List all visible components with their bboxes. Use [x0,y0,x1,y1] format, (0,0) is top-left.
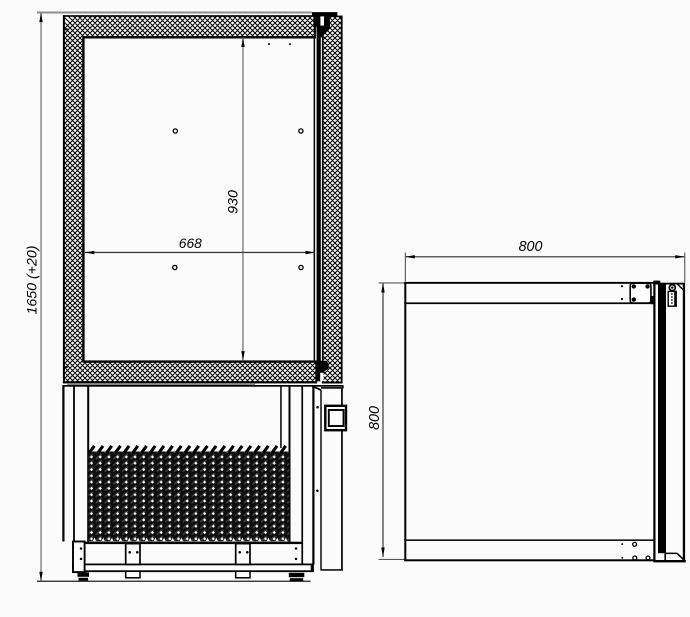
svg-text:668: 668 [179,236,202,251]
svg-text:930: 930 [226,190,242,214]
svg-text:800: 800 [367,406,383,430]
svg-text:1650 (+20): 1650 (+20) [24,245,40,314]
svg-text:800: 800 [519,239,543,255]
